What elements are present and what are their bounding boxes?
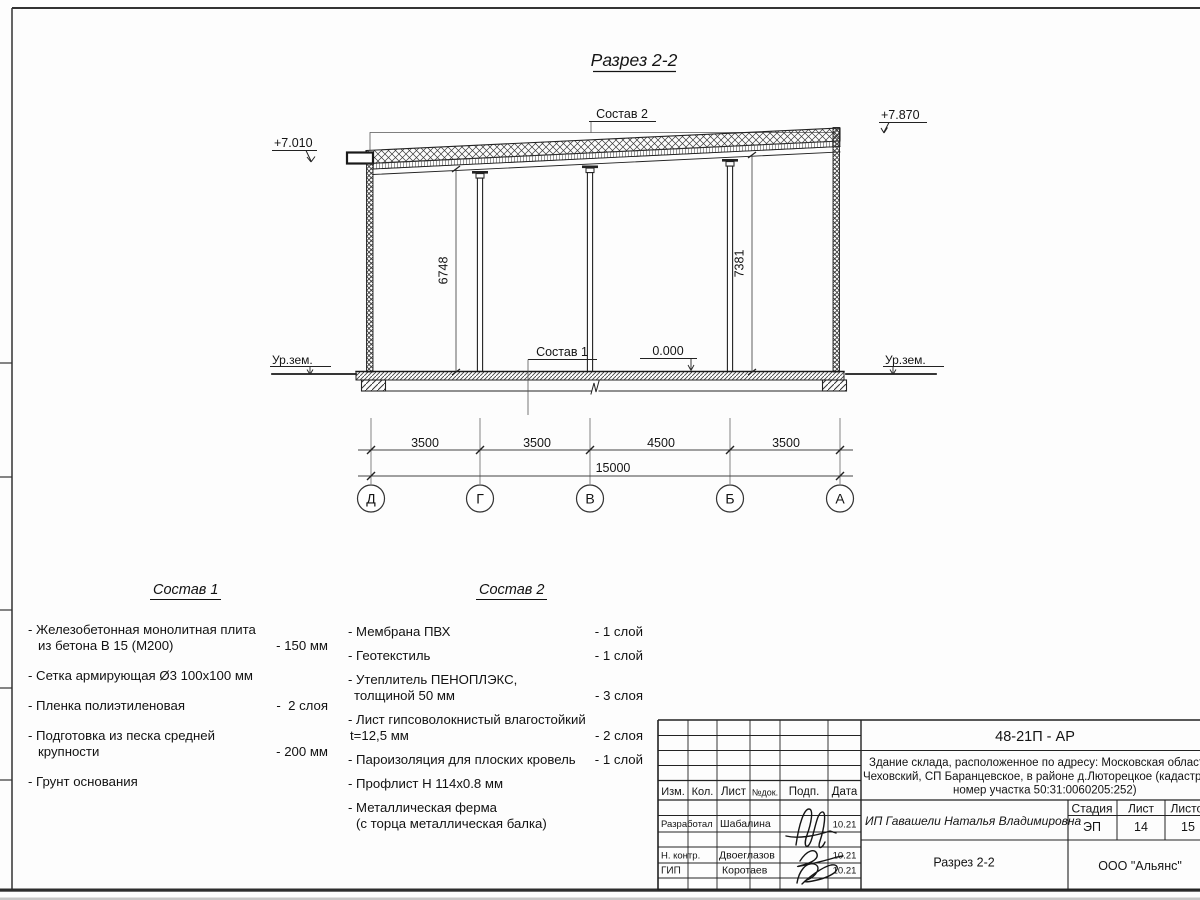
role-ncontrol: Н. контр.: [661, 851, 700, 862]
column-axis-v: [582, 166, 598, 372]
axis-label-b: Б: [725, 491, 734, 507]
sheets-total: 15: [1181, 820, 1195, 834]
comp1-item: - Грунт основания: [28, 774, 328, 790]
axis-label-v: В: [585, 491, 594, 507]
sheets-header: Листов: [1171, 802, 1200, 816]
title-block: 48-21П - АР Здание склада, расположенное…: [658, 720, 1200, 890]
comp1-list: - Железобетонная монолитная плита из бет…: [28, 622, 328, 804]
binding-tick-marks: [0, 363, 12, 780]
axis-label-d: Д: [366, 491, 376, 507]
signature-shabalina: [786, 809, 836, 848]
stage-value: ЭП: [1083, 820, 1101, 834]
drawing-sheet: { "drawing": { "title": "Разрез 2-2", "e…: [0, 0, 1200, 900]
col-header-list: Лист: [721, 786, 747, 798]
span-dim-4: 3500: [772, 436, 800, 450]
comp2-title: Состав 2: [476, 582, 547, 600]
axis-label-g: Г: [476, 491, 484, 507]
elevation-right-arrow-icon: [881, 123, 889, 134]
vertical-dimensions: 6748 7381: [437, 152, 757, 375]
comp2-ref-label: Состав 2: [596, 107, 648, 121]
company-name: ООО "Альянс": [1098, 859, 1182, 873]
date-developed: 10.21: [833, 820, 857, 831]
ground-level-left-label: Ур.зем.: [272, 353, 313, 367]
signature-korotaev: [797, 864, 837, 884]
name-developed: Шабалина: [720, 818, 771, 830]
sheet-title: Разрез 2-2: [933, 856, 994, 870]
building-section: [272, 122, 936, 395]
object-description-line3: номер участка 50:31:0060205:252): [953, 785, 1137, 797]
stage-header: Стадия: [1072, 802, 1113, 816]
axis-bubbles: Д Г В Б А: [358, 485, 854, 512]
elevation-left-label: +7.010: [274, 136, 313, 150]
right-footing: [823, 380, 847, 391]
date-ncontrol: 10.21: [833, 851, 857, 862]
drawing-title: Разрез 2-2: [591, 50, 678, 70]
axis-label-a: А: [835, 491, 845, 507]
comp2-item: - Лист гипсоволокнистый влагостойкий t=1…: [348, 712, 643, 744]
role-gip: ГИП: [661, 866, 681, 877]
comp2-item: - Пароизоляция для плоских кровель - 1 с…: [348, 752, 643, 768]
span-dim-2: 3500: [523, 436, 551, 450]
name-ncontrol: Двоеглазов: [719, 850, 775, 862]
doc-code: 48-21П - АР: [995, 729, 1075, 745]
comp2-item: - Геотекстиль - 1 слой: [348, 648, 643, 664]
comp1-ref-label: Состав 1: [536, 345, 588, 359]
col-header-podp: Подп.: [789, 786, 820, 798]
comp1-item: - Железобетонная монолитная плита из бет…: [28, 622, 328, 654]
comp1-title: Состав 1: [150, 582, 221, 600]
comp2-item: - Профлист Н 114х0.8 мм: [348, 776, 643, 792]
elevation-left-arrow-icon: [306, 151, 315, 163]
zero-elevation-arrow-icon: [688, 359, 694, 371]
span-dim-1: 3500: [411, 436, 439, 450]
column-axis-g: [472, 171, 488, 372]
floor-slab: [356, 372, 844, 381]
dimension-chains: 3500 3500 4500 3500 15000: [358, 418, 853, 484]
comp1-item: - Пленка полиэтиленовая - 2 слоя: [28, 698, 328, 714]
ground-level-right-label: Ур.зем.: [885, 353, 926, 367]
object-description-line1: Здание склада, расположенное по адресу: …: [869, 757, 1200, 769]
left-wall: [367, 163, 374, 372]
name-gip: Коротаев: [722, 865, 768, 877]
total-dim: 15000: [596, 461, 631, 475]
span-dim-3: 4500: [647, 436, 675, 450]
right-wall: [833, 128, 840, 373]
sheet-header: Лист: [1128, 802, 1155, 816]
left-footing: [362, 380, 386, 391]
role-developed: Разработал: [661, 819, 713, 830]
height-dim-left: 6748: [437, 257, 451, 285]
comp1-item: - Подготовка из песка средней крупности …: [28, 728, 328, 760]
comp2-list: - Мембрана ПВХ - 1 слой - Геотекстиль - …: [348, 624, 643, 840]
comp2-item: - Металлическая ферма (с торца металличе…: [348, 800, 643, 832]
client-name: ИП Гавашели Наталья Владимировна: [865, 814, 1082, 828]
break-symbol: [591, 381, 599, 394]
col-header-kol: Кол.: [692, 786, 714, 798]
roof-eave-beam: [347, 153, 373, 164]
comp2-item: - Мембрана ПВХ - 1 слой: [348, 624, 643, 640]
col-header-data: Дата: [832, 786, 858, 798]
comp2-item: - Утеплитель ПЕНОПЛЭКС, толщиной 50 мм -…: [348, 672, 643, 704]
sheet-number: 14: [1134, 820, 1148, 834]
comp1-item: - Сетка армирующая Ø3 100х100 мм: [28, 668, 328, 684]
col-header-izm: Изм.: [661, 786, 685, 798]
height-dim-right: 7381: [733, 250, 747, 278]
col-header-ndoc: №док.: [752, 788, 778, 798]
elevation-right-label: +7.870: [881, 108, 920, 122]
object-description-line2: Чеховский, СП Баранцевское, в районе д.Л…: [863, 771, 1200, 783]
zero-elevation-label: 0.000: [652, 344, 683, 358]
